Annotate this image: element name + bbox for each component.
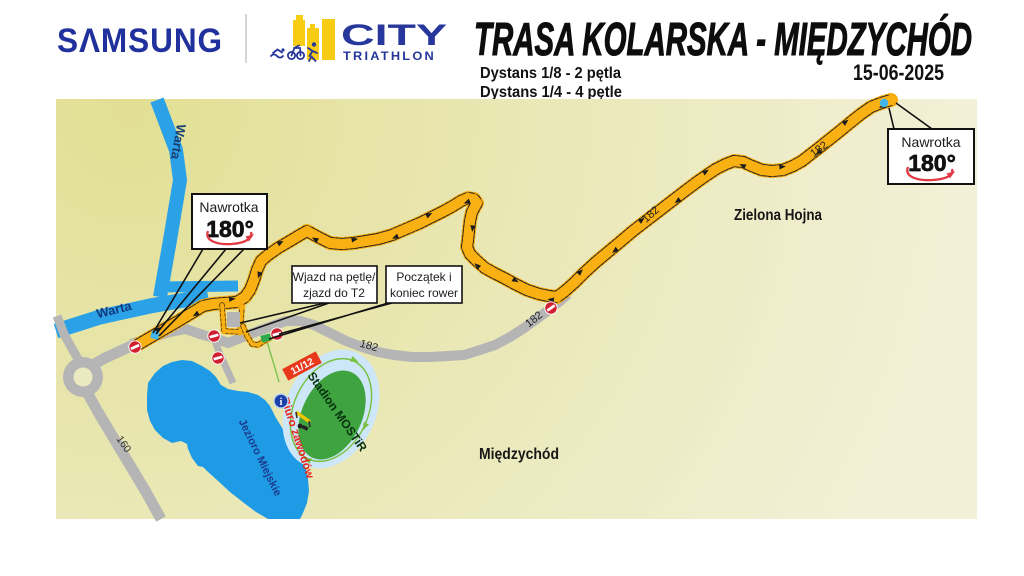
svg-text:zjazd do T2: zjazd do T2	[303, 286, 365, 300]
svg-text:15-06-2025: 15-06-2025	[853, 60, 944, 85]
svg-text:SΛMSUNG: SΛMSUNG	[57, 22, 223, 60]
svg-text:Nawrotka: Nawrotka	[901, 134, 960, 150]
svg-text:Nawrotka: Nawrotka	[199, 199, 258, 215]
svg-text:koniec rower: koniec rower	[390, 286, 458, 300]
svg-text:Wjazd na pętlę/: Wjazd na pętlę/	[293, 270, 376, 284]
svg-text:Początek i: Początek i	[396, 270, 451, 284]
svg-text:Zielona Hojna: Zielona Hojna	[734, 207, 822, 224]
svg-text:Międzychód: Międzychód	[479, 446, 559, 463]
svg-text:i: i	[280, 397, 283, 408]
svg-text:Dystans 1/8 - 2 pętla: Dystans 1/8 - 2 pętla	[480, 65, 621, 82]
svg-text:TRASA KOLARSKA - MIĘDZYCHÓD: TRASA KOLARSKA - MIĘDZYCHÓD	[474, 13, 972, 65]
svg-text:TRIATHLON: TRIATHLON	[343, 51, 436, 63]
svg-text:Dystans 1/4 - 4 pętle: Dystans 1/4 - 4 pętle	[480, 84, 622, 101]
svg-text:180°: 180°	[908, 150, 956, 176]
svg-text:CITY: CITY	[341, 19, 447, 52]
